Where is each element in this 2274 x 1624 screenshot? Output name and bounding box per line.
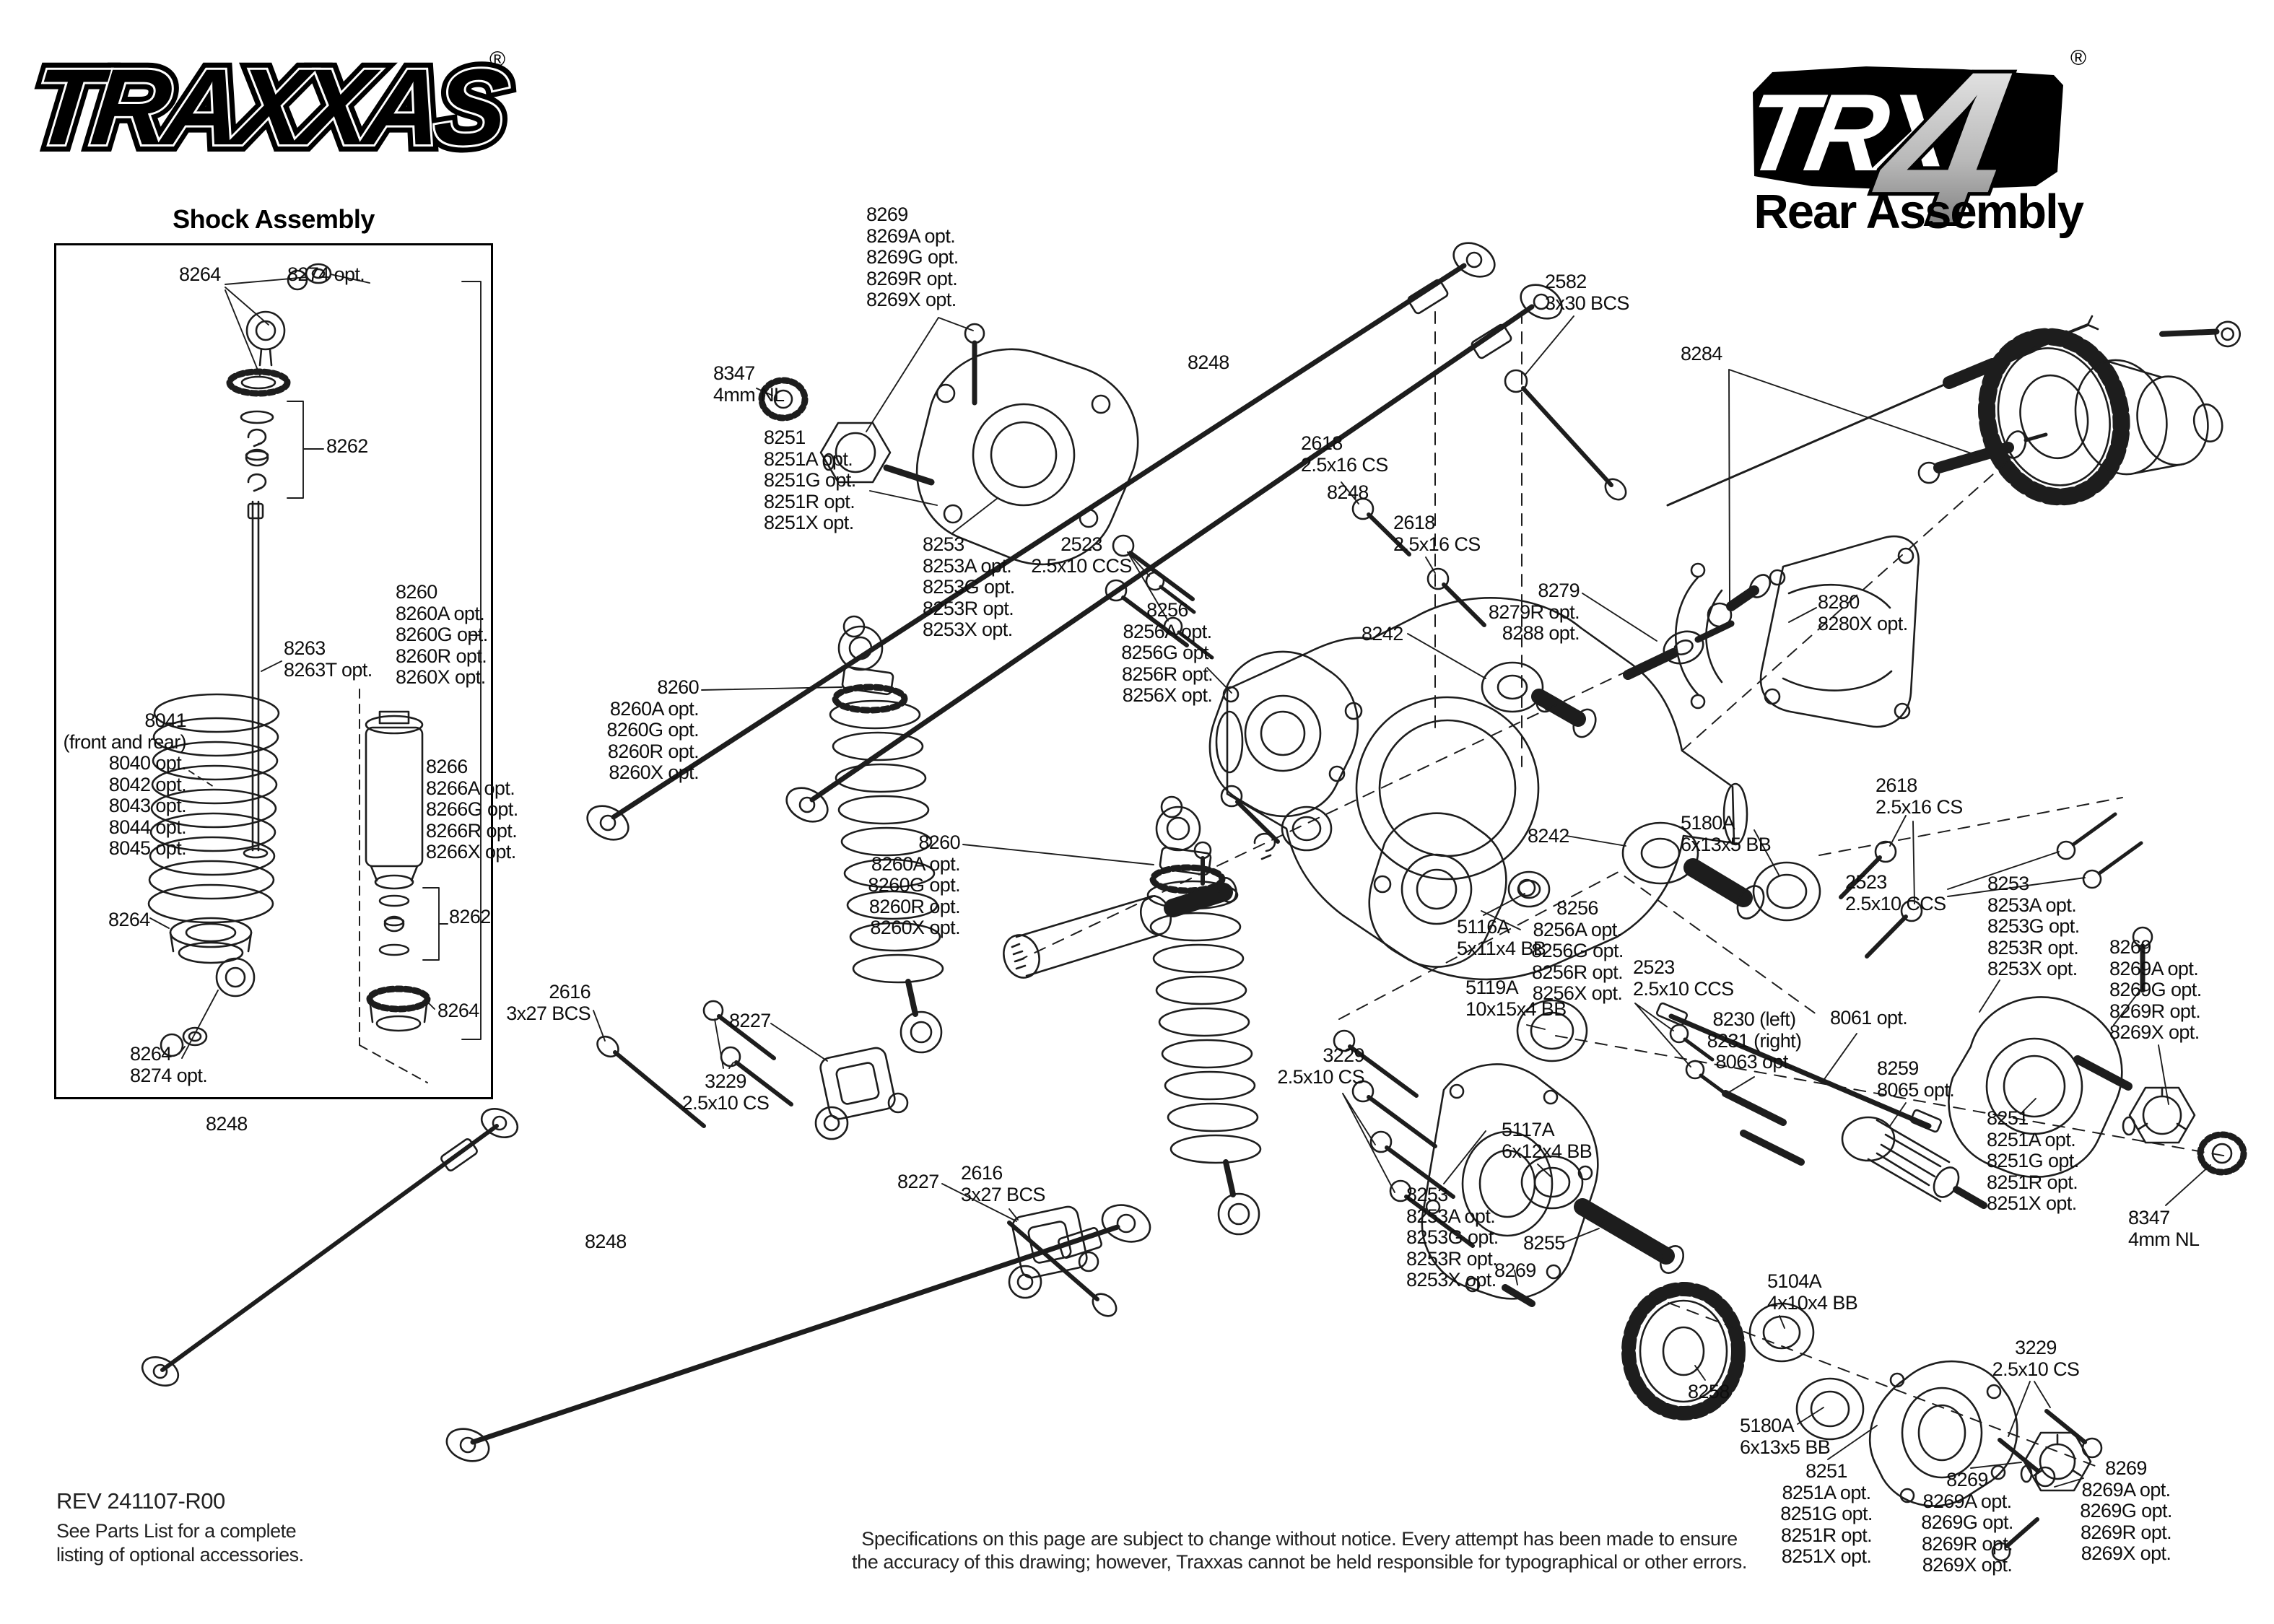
part-label-main-8284: 8284 <box>1681 344 1722 365</box>
part-label-shock1-8260-stack: 8260 8260A opt. 8260G opt. 8260R opt. 82… <box>557 677 699 784</box>
part-label-low-3229-right: 3229 2.5x10 CS <box>1978 1337 2094 1380</box>
page: { "header": { "brand": "TRAXXAS", "brand… <box>0 0 2274 1624</box>
parts-list-note-line2: listing of optional accessories. <box>56 1543 304 1567</box>
disclaimer-line1: Specifications on this page are subject … <box>758 1527 1841 1550</box>
part-labels-layer: 82648274 opt.82628260 8260A opt. 8260G o… <box>0 0 2274 1624</box>
part-label-shock-8274-top: 8274 opt. <box>287 264 365 286</box>
part-label-main-2618-a: 2618 2.5x16 CS <box>1301 433 1388 476</box>
part-label-main-2618-b: 2618 2.5x16 CS <box>1393 512 1481 555</box>
part-label-shock-8263: 8263 8263T opt. <box>284 638 373 681</box>
part-label-main-8258: 8258 <box>1688 1381 1730 1403</box>
parts-list-note: See Parts List for a complete listing of… <box>56 1519 304 1567</box>
part-label-main-8269-single: 8269 <box>1494 1260 1536 1282</box>
parts-list-note-line1: See Parts List for a complete <box>56 1519 304 1543</box>
part-label-low-2616-left: 2616 3x27 BCS <box>481 982 591 1024</box>
part-label-low-8248: 8248 <box>585 1231 627 1253</box>
revision-text: REV 241107-R00 <box>56 1488 225 1514</box>
part-label-main-5104A: 5104A 4x10x4 BB <box>1767 1271 1857 1314</box>
part-label-main-2523-mid: 2523 2.5x10 CCS <box>1633 957 1734 1000</box>
part-label-main-8253-bottom-stack: 8253 8253A opt. 8253G opt. 8253R opt. 82… <box>1406 1184 1499 1291</box>
part-label-shock2-8260-stack: 8260 8260A opt. 8260G opt. 8260R opt. 82… <box>819 832 960 939</box>
part-label-main-8256-left-stack: 8256 8256A opt. 8256G opt. 8256R opt. 82… <box>1095 600 1240 707</box>
part-label-main-8253-right-stack: 8253 8253A opt. 8253G opt. 8253R opt. 82… <box>1987 873 2080 980</box>
part-label-main-8280: 8280 8280X opt. <box>1818 592 1908 634</box>
part-label-main-2523-top: 2523 2.5x10 CCS <box>1024 534 1139 577</box>
part-label-main-8253-mid-stack: 8253 8253A opt. 8253G opt. 8253R opt. 82… <box>923 534 1015 641</box>
part-label-low-8269-bottom-right-stack: 8269 8269A opt. 8269G opt. 8269R opt. 82… <box>2057 1458 2195 1565</box>
part-label-main-8230-stack: 8230 (left) 8231 (right) 8063 opt. <box>1683 1009 1825 1073</box>
part-label-shock-8264-top: 8264 <box>179 264 221 286</box>
part-label-shock-8264-mid: 8264 <box>108 909 150 931</box>
part-label-main-8248-rod-b: 8248 <box>1327 482 1369 504</box>
part-label-low-3229-left: 3229 2.5x10 CS <box>668 1071 783 1114</box>
part-label-main-8279-stack: 8279 8279R opt. 8288 opt. <box>1444 580 1580 645</box>
part-label-main-8061: 8061 opt. <box>1830 1008 1907 1029</box>
part-label-low-2616-right: 2616 3x27 BCS <box>961 1163 1045 1205</box>
disclaimer-line2: the accuracy of this drawing; however, T… <box>758 1550 1841 1573</box>
part-label-shock-8260-stack: 8260 8260A opt. 8260G opt. 8260R opt. 82… <box>396 582 488 689</box>
part-label-main-8251-top-stack: 8251 8251A opt. 8251G opt. 8251R opt. 82… <box>764 427 856 534</box>
part-label-main-8347-top: 8347 4mm NL <box>713 363 784 406</box>
part-label-main-8259: 8259 8065 opt. <box>1877 1058 1954 1101</box>
part-label-main-8242-a: 8242 <box>1362 624 1403 645</box>
part-label-main-8347-right: 8347 4mm NL <box>2128 1208 2199 1250</box>
disclaimer: Specifications on this page are subject … <box>758 1527 1841 1573</box>
part-label-main-8255: 8255 <box>1523 1233 1565 1254</box>
part-label-main-8248-rod-a: 8248 <box>1188 352 1229 374</box>
part-label-main-8269-top-stack: 8269 8269A opt. 8269G opt. 8269R opt. 82… <box>866 204 959 311</box>
part-label-main-5180A-bottom: 5180A 6x13x5 BB <box>1740 1415 1830 1458</box>
part-label-main-3229-mid: 3229 2.5x10 CS <box>1255 1045 1364 1088</box>
part-label-shock-8262-lower: 8262 <box>449 907 491 928</box>
part-label-low-8227-b: 8227 <box>897 1171 939 1193</box>
part-label-shock-8041-stack: 8041 (front and rear) 8040 opt. 8042 opt… <box>45 710 186 860</box>
part-label-shock-8266-stack: 8266 8266A opt. 8266G opt. 8266R opt. 82… <box>426 756 518 863</box>
part-label-main-2523-right: 2523 2.5x10 CCS <box>1845 872 1946 914</box>
part-label-shock-8264-bottom: 8264 8274 opt. <box>130 1044 207 1086</box>
part-label-shock-8248: 8248 <box>206 1114 248 1135</box>
part-label-main-8251-right-stack: 8251 8251A opt. 8251G opt. 8251R opt. 82… <box>1987 1108 2079 1215</box>
part-label-main-5180A-top: 5180A 6x13x5 BB <box>1681 813 1771 855</box>
part-label-main-8242-b: 8242 <box>1528 826 1569 847</box>
part-label-main-2582: 2582 3x30 BCS <box>1545 271 1629 314</box>
part-label-main-5119A: 5119A 10x15x4 BB <box>1465 977 1567 1020</box>
part-label-low-8227-a: 8227 <box>729 1010 771 1032</box>
part-label-low-8269-bottom-left-stack: 8269 8269A opt. 8269G opt. 8269R opt. 82… <box>1899 1470 2036 1576</box>
part-label-main-2618-d: 2618 2.5x16 CS <box>1876 775 1963 818</box>
part-label-shock-8262-upper: 8262 <box>326 436 368 458</box>
part-label-shock-8264-retainer: 8264 <box>437 1000 479 1022</box>
part-label-main-5117A: 5117A 6x12x4 BB <box>1502 1119 1592 1162</box>
part-label-main-8269-right-stack: 8269 8269A opt. 8269G opt. 8269R opt. 82… <box>2109 937 2202 1044</box>
